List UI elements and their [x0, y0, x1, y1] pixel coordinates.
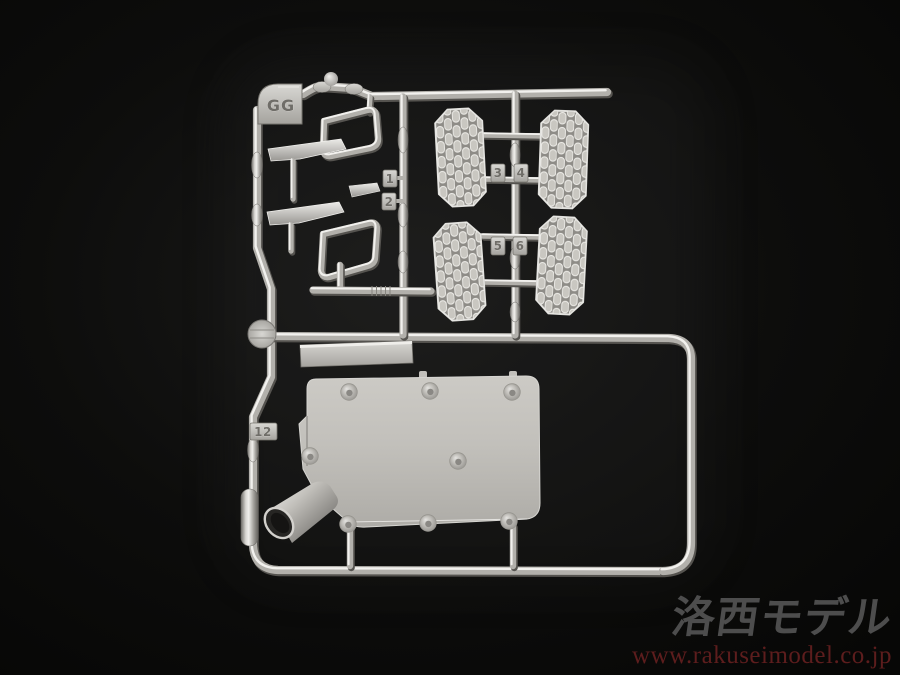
tread-plate-4 — [535, 216, 587, 315]
mounting-plate — [299, 371, 540, 532]
sprue-photo: GG 1 2 3 4 5 6 12 — [0, 0, 900, 675]
tag-text-6: 6 — [516, 239, 525, 253]
round-gate-disc — [248, 320, 276, 348]
watermark-logo: 洛西モデル — [629, 596, 895, 641]
gate-label-plate: GG — [258, 84, 302, 124]
tag-text-2: 2 — [385, 195, 394, 209]
tag-text-4: 4 — [517, 166, 526, 180]
gate-label-text: GG — [267, 96, 295, 115]
tag-text-3: 3 — [494, 166, 503, 180]
tag-text-12: 12 — [254, 425, 272, 439]
step-bar-part — [300, 341, 413, 367]
tread-plate-1 — [435, 108, 487, 207]
tag-text-1: 1 — [386, 172, 395, 186]
ball-joint — [324, 72, 338, 86]
photo-stage: GG 1 2 3 4 5 6 12 洛西モデル www.rakuseimodel… — [0, 0, 900, 675]
tag-text-5: 5 — [494, 239, 503, 253]
watermark-url: www.rakuseimodel.co.jp — [632, 642, 892, 670]
watermark: 洛西モデル www.rakuseimodel.co.jp — [632, 596, 892, 670]
tread-plate-3 — [433, 221, 487, 321]
tread-plate-2 — [538, 110, 588, 209]
